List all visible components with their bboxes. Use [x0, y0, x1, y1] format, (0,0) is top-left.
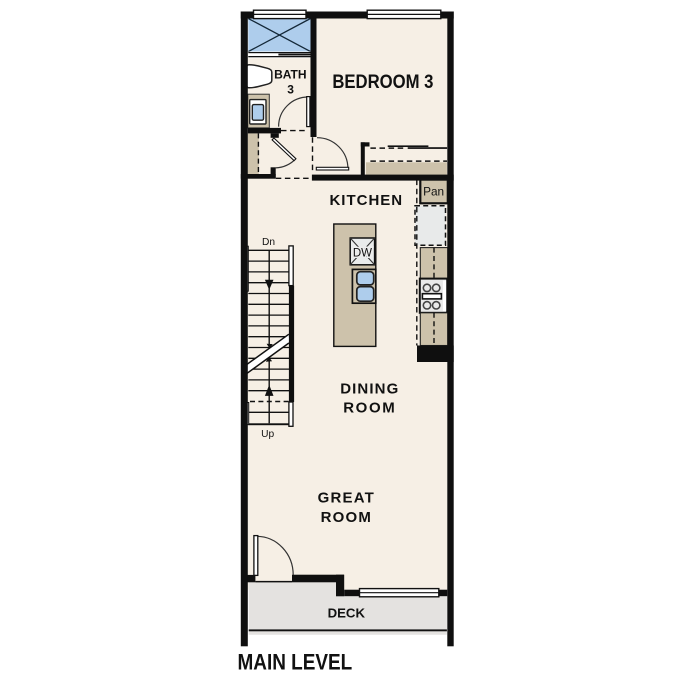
svg-text:MAIN LEVEL: MAIN LEVEL — [238, 650, 353, 675]
svg-text:ROOM: ROOM — [321, 509, 372, 526]
svg-text:ROOM: ROOM — [343, 400, 396, 417]
svg-text:GREAT: GREAT — [318, 490, 375, 507]
svg-text:KITCHEN: KITCHEN — [329, 192, 403, 209]
svg-text:DINING: DINING — [340, 380, 399, 397]
svg-text:Dn: Dn — [262, 237, 275, 248]
svg-text:Pan: Pan — [423, 184, 444, 198]
svg-text:DW: DW — [353, 247, 372, 259]
svg-text:3: 3 — [287, 82, 294, 96]
svg-text:BEDROOM 3: BEDROOM 3 — [332, 71, 433, 92]
svg-text:BATH: BATH — [274, 67, 306, 81]
svg-text:Up: Up — [261, 429, 274, 440]
svg-text:DECK: DECK — [328, 606, 366, 621]
